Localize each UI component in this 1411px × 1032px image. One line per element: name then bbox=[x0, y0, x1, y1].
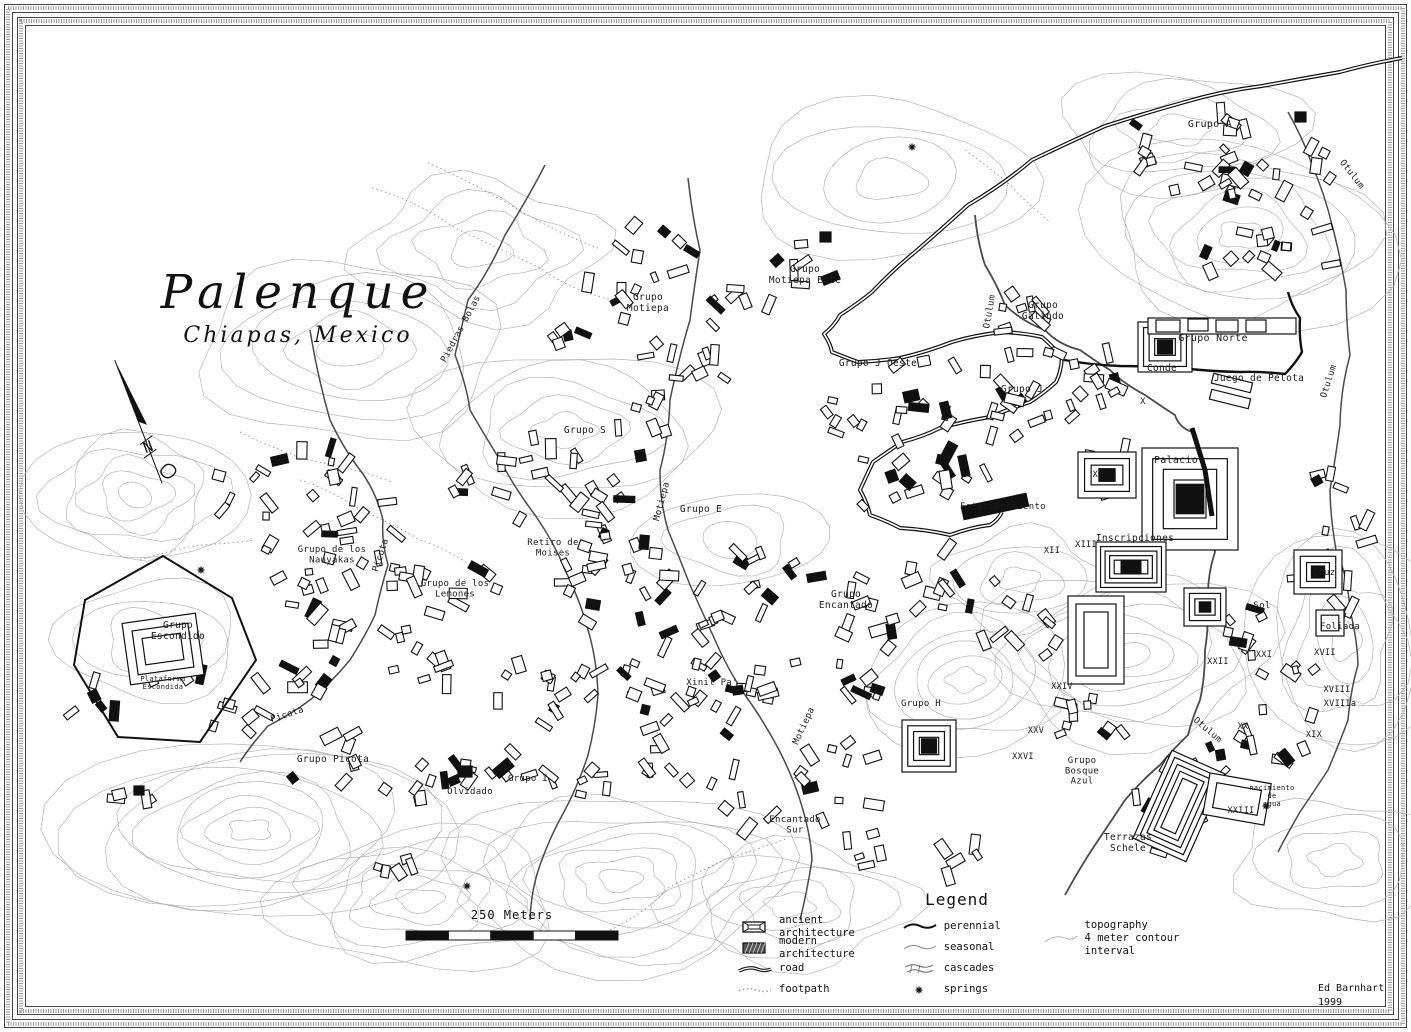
map-label: Otulum bbox=[1191, 716, 1224, 746]
map-label: XXVI bbox=[1012, 752, 1034, 762]
map-label: Juego de Pelota bbox=[1214, 373, 1304, 384]
map-label: Grupo Norte bbox=[1178, 333, 1248, 344]
map-label: XXI bbox=[1256, 650, 1272, 660]
map-label: XI bbox=[1093, 470, 1104, 480]
map-label: XVIIIa bbox=[1324, 699, 1357, 709]
map-label: Retiro deMoises bbox=[527, 538, 578, 558]
map-label: Motiepa bbox=[791, 706, 817, 747]
map-label: XIII bbox=[1075, 540, 1097, 550]
legend-label: springs bbox=[944, 983, 988, 996]
ancient-icon bbox=[737, 919, 773, 935]
legend-label: seasonal bbox=[944, 941, 995, 954]
map-label: Grupo E bbox=[680, 504, 722, 515]
footpath-icon bbox=[737, 982, 773, 998]
map-label: TerrazasSchele bbox=[1104, 832, 1152, 854]
footpath-symbol bbox=[737, 982, 773, 998]
modern-symbol bbox=[737, 940, 773, 956]
north-arrow: N bbox=[107, 354, 178, 486]
map-label: Grupo I bbox=[508, 774, 548, 784]
map-label: XXIII bbox=[1227, 806, 1254, 816]
springs-icon bbox=[902, 982, 938, 998]
map-title-block: Palenque Chiapas, Mexico bbox=[158, 268, 438, 348]
legend-column-topography: topography 4 meter contour interval bbox=[1043, 919, 1207, 1003]
map-label: XIX bbox=[1306, 730, 1323, 740]
map-label: Piedras Bolas bbox=[439, 294, 483, 364]
map-label: GrupoMotiepa Este bbox=[769, 264, 841, 286]
legend-item-cascades: cascades bbox=[902, 961, 1028, 977]
map-label: GrupoEncantado bbox=[819, 589, 873, 611]
monument-modern-building bbox=[1295, 112, 1306, 122]
perennial-icon bbox=[902, 919, 938, 935]
map-label: Grupo de losNauyakas bbox=[298, 545, 367, 565]
ancient-symbol bbox=[737, 919, 773, 935]
monument-grupo-norte-temple bbox=[1246, 320, 1266, 332]
spring-symbol bbox=[198, 567, 205, 574]
map-label: Olvidado bbox=[447, 787, 493, 797]
monument-grupo-norte-temple bbox=[1216, 320, 1238, 332]
north-letter: N bbox=[141, 437, 156, 457]
legend-item-topo: topography 4 meter contour interval bbox=[1043, 919, 1207, 958]
legend-column-water: perennialseasonalcascadessprings bbox=[902, 919, 1028, 1003]
legend-item-modern: modern architecture bbox=[737, 940, 892, 956]
scale-bar-graphic bbox=[398, 929, 626, 943]
map-label: Picota bbox=[371, 538, 391, 574]
legend-label: perennial bbox=[944, 920, 1001, 933]
road-symbol bbox=[737, 961, 773, 977]
map-label: XX bbox=[1238, 722, 1249, 732]
monument-temple-sol bbox=[1184, 588, 1226, 626]
map-label: Otulum bbox=[982, 294, 998, 330]
legend-label: topography 4 meter contour interval bbox=[1085, 919, 1207, 958]
map-label: GrupoBosqueAzul bbox=[1065, 756, 1099, 787]
map-label: XXIV bbox=[1051, 682, 1073, 692]
legend-item-road: road bbox=[737, 961, 892, 977]
legend-item-ancient: ancient architecture bbox=[737, 919, 892, 935]
monument-modern-building bbox=[820, 232, 831, 242]
legend-title: Legend bbox=[847, 890, 1067, 909]
spring-symbol bbox=[464, 883, 471, 890]
legend-label: cascades bbox=[944, 962, 995, 975]
legend-label: road bbox=[779, 962, 804, 975]
monument-temple-xi bbox=[1078, 452, 1136, 498]
map-svg: NGrupo AOtulumGrupoMotiepa EsteGrupoMoti… bbox=[0, 0, 1411, 1032]
topo-icon bbox=[1043, 931, 1079, 947]
map-label: Grupo S bbox=[564, 425, 606, 436]
map-label: Foliada bbox=[1320, 622, 1360, 632]
modern-icon bbox=[737, 940, 773, 956]
legend-item-springs: springs bbox=[902, 982, 1028, 998]
map-label: EncantadoSur bbox=[769, 815, 820, 835]
road-icon bbox=[737, 961, 773, 977]
map-label: Grupo Picota bbox=[297, 754, 369, 765]
map-label: Otulum bbox=[1319, 364, 1339, 400]
legend-columns: ancient architecturemodern architecturer… bbox=[737, 919, 1207, 1003]
monument-inscripciones bbox=[1096, 542, 1166, 592]
map-label: GrupoGalindo bbox=[1022, 300, 1064, 322]
legend-item-perennial: perennial bbox=[902, 919, 1028, 935]
map-label: Grupo A bbox=[1188, 119, 1232, 130]
map-label: Grupo de losLemones bbox=[421, 579, 490, 599]
seasonal-symbol bbox=[902, 940, 938, 956]
legend-column-architecture: ancient architecturemodern architecturer… bbox=[737, 919, 892, 1003]
monument-grupo-norte-temple bbox=[1156, 320, 1180, 332]
map-label: Grupo J bbox=[1001, 384, 1043, 395]
spring-symbol bbox=[909, 144, 916, 151]
monument-modern-building bbox=[134, 786, 144, 795]
monument-ballcourt-b bbox=[1209, 389, 1250, 408]
monument-modern-building bbox=[458, 766, 472, 777]
monuments bbox=[74, 112, 1344, 862]
legend-item-footpath: footpath bbox=[737, 982, 892, 998]
legend-label: footpath bbox=[779, 983, 830, 996]
monument-xxiii-platform bbox=[1203, 773, 1271, 825]
map-label: Cruz bbox=[1313, 568, 1336, 578]
map-label: GrupoMotiepa bbox=[627, 292, 669, 314]
cascades-symbol bbox=[902, 961, 938, 977]
springs-symbol bbox=[902, 982, 938, 998]
map-label: XXII bbox=[1207, 657, 1229, 667]
map-label: Estacionamiento bbox=[960, 502, 1046, 512]
map-label: Picota bbox=[270, 705, 306, 725]
map-label: Grupo H bbox=[901, 699, 941, 709]
map-label: XVII bbox=[1314, 648, 1336, 658]
map-title: Palenque bbox=[158, 268, 438, 317]
map-label: X bbox=[1140, 397, 1146, 407]
cascades-icon bbox=[902, 961, 938, 977]
map-label: Inscripciones bbox=[1096, 533, 1174, 544]
map-label: Conde bbox=[1147, 363, 1177, 374]
legend-label: modern architecture bbox=[779, 935, 892, 961]
map-label: PlataformaEscondida bbox=[140, 675, 185, 691]
map-label: Motiepa bbox=[652, 481, 672, 522]
monument-grupo-h-pyramid bbox=[902, 720, 956, 772]
map-subtitle: Chiapas, Mexico bbox=[158, 323, 438, 348]
topo-symbol bbox=[1043, 931, 1079, 947]
map-label: XII bbox=[1044, 546, 1060, 556]
palenque-map-page: NGrupo AOtulumGrupoMotiepa EsteGrupoMoti… bbox=[0, 0, 1411, 1032]
map-label: XXV bbox=[1028, 726, 1044, 736]
credit: Ed Barnhart 1999 bbox=[1318, 982, 1384, 1009]
credit-author: Ed Barnhart bbox=[1318, 982, 1384, 996]
legend-item-seasonal: seasonal bbox=[902, 940, 1028, 956]
credit-year: 1999 bbox=[1318, 996, 1384, 1010]
scale-bar-label: 250 Meters bbox=[398, 908, 626, 922]
map-label: Sol bbox=[1253, 601, 1270, 611]
map-label: XVIII bbox=[1323, 685, 1350, 695]
map-label: Xinil Pa' bbox=[686, 678, 737, 688]
monument-grupo-norte-temple bbox=[1188, 319, 1208, 331]
seasonal-icon bbox=[902, 940, 938, 956]
map-label: Grupo J Oeste bbox=[839, 358, 917, 369]
map-label: Palacio bbox=[1154, 455, 1198, 466]
perennial-symbol bbox=[902, 919, 938, 935]
legend: Legend ancient architecturemodern archit… bbox=[737, 890, 1207, 1003]
monument-xxiv-terrace bbox=[1068, 596, 1124, 684]
scale-bar: 250 Meters bbox=[398, 908, 626, 947]
